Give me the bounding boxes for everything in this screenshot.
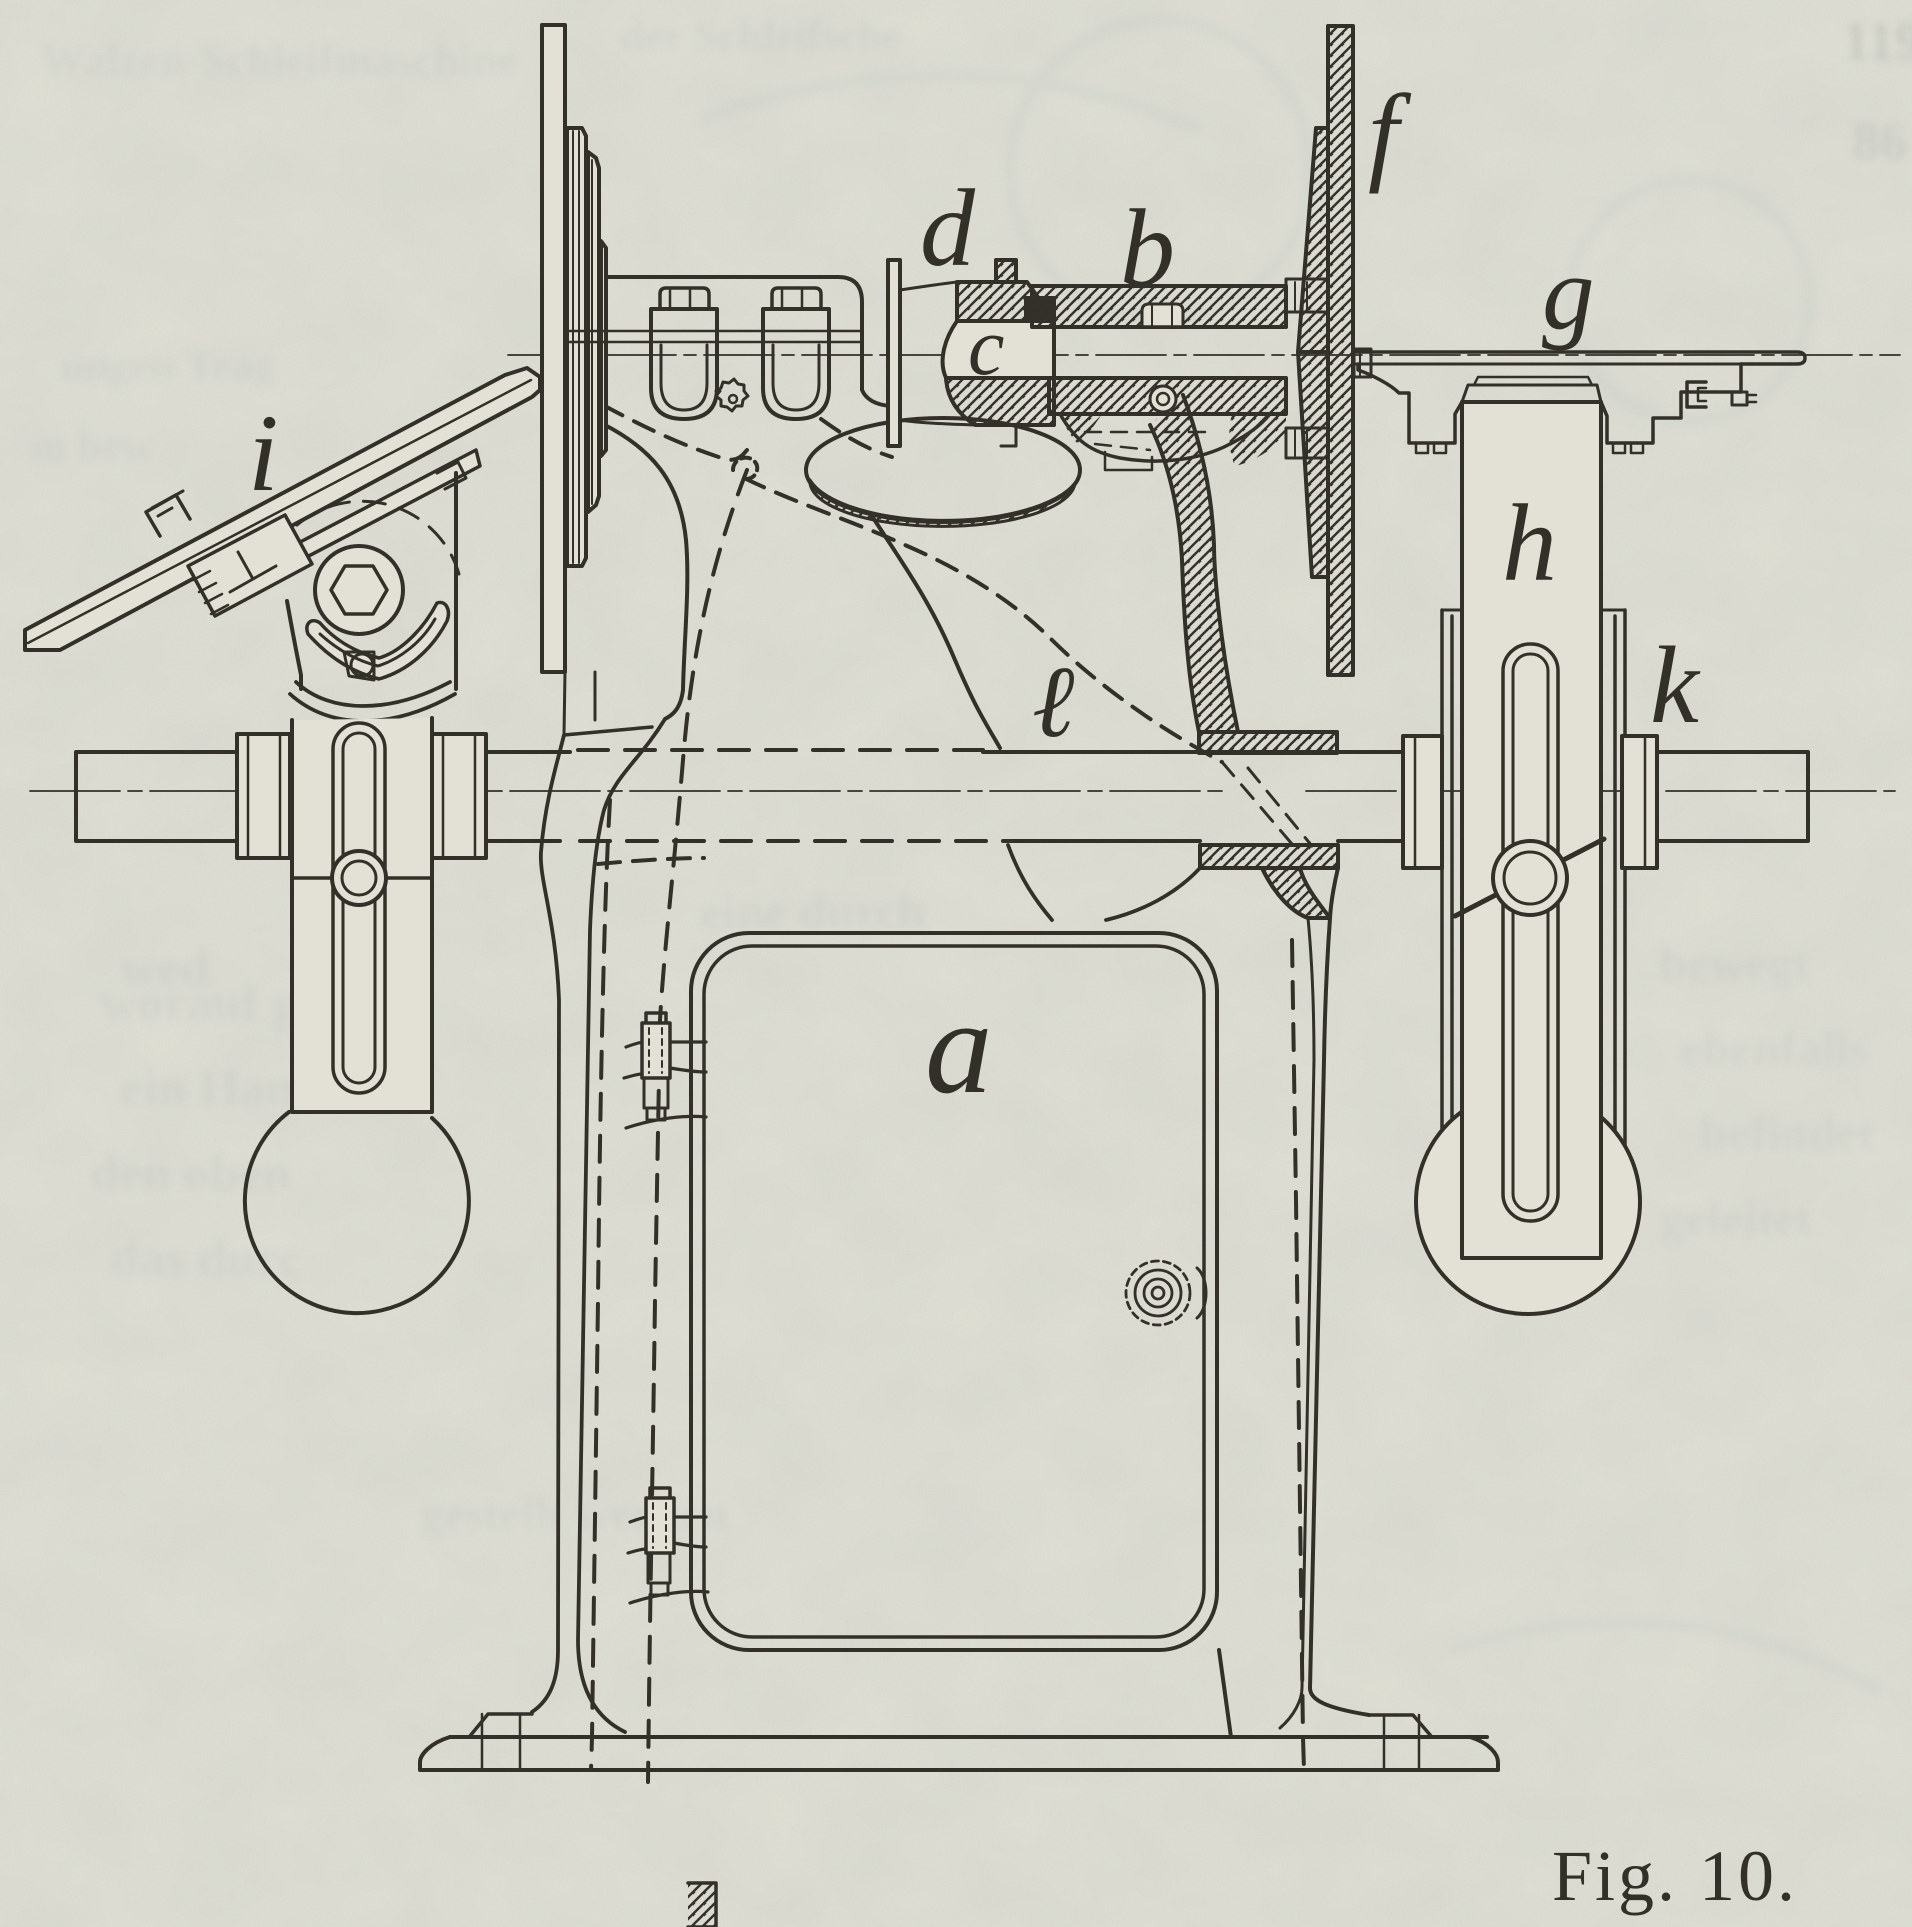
svg-text:c: c <box>968 301 1004 392</box>
svg-text:den oben: den oben <box>90 1145 291 1202</box>
svg-text:i: i <box>248 392 279 514</box>
svg-text:Fig. 10.: Fig. 10. <box>1552 1836 1798 1916</box>
svg-text:d: d <box>920 167 976 289</box>
svg-text:a: a <box>925 973 993 1122</box>
svg-text:119: 119 <box>1842 11 1912 73</box>
svg-text:k: k <box>1650 624 1701 746</box>
svg-text:86: 86 <box>1852 111 1908 173</box>
svg-text:ebenfalls: ebenfalls <box>1680 1020 1869 1076</box>
svg-text:das durc: das durc <box>110 1230 301 1287</box>
svg-text:befindet: befindet <box>1700 1105 1875 1161</box>
svg-text:geleitet: geleitet <box>1660 1190 1813 1246</box>
svg-text:der Schleifsche: der Schleifsche <box>620 11 902 60</box>
svg-text:ungen Trag: ungen Trag <box>60 341 275 390</box>
svg-text:b: b <box>1120 187 1175 309</box>
svg-text:g: g <box>1542 234 1595 351</box>
svg-text:Walzen-Schleifmaschine: Walzen-Schleifmaschine <box>40 34 518 85</box>
svg-text:gestellt werden: gestellt werden <box>420 1488 728 1541</box>
svg-text:eine durch: eine durch <box>700 883 926 939</box>
svg-text:m bew: m bew <box>30 421 154 470</box>
svg-text:h: h <box>1502 482 1557 604</box>
svg-text:bewegt: bewegt <box>1660 935 1810 991</box>
svg-text:ℓ: ℓ <box>1032 646 1074 759</box>
